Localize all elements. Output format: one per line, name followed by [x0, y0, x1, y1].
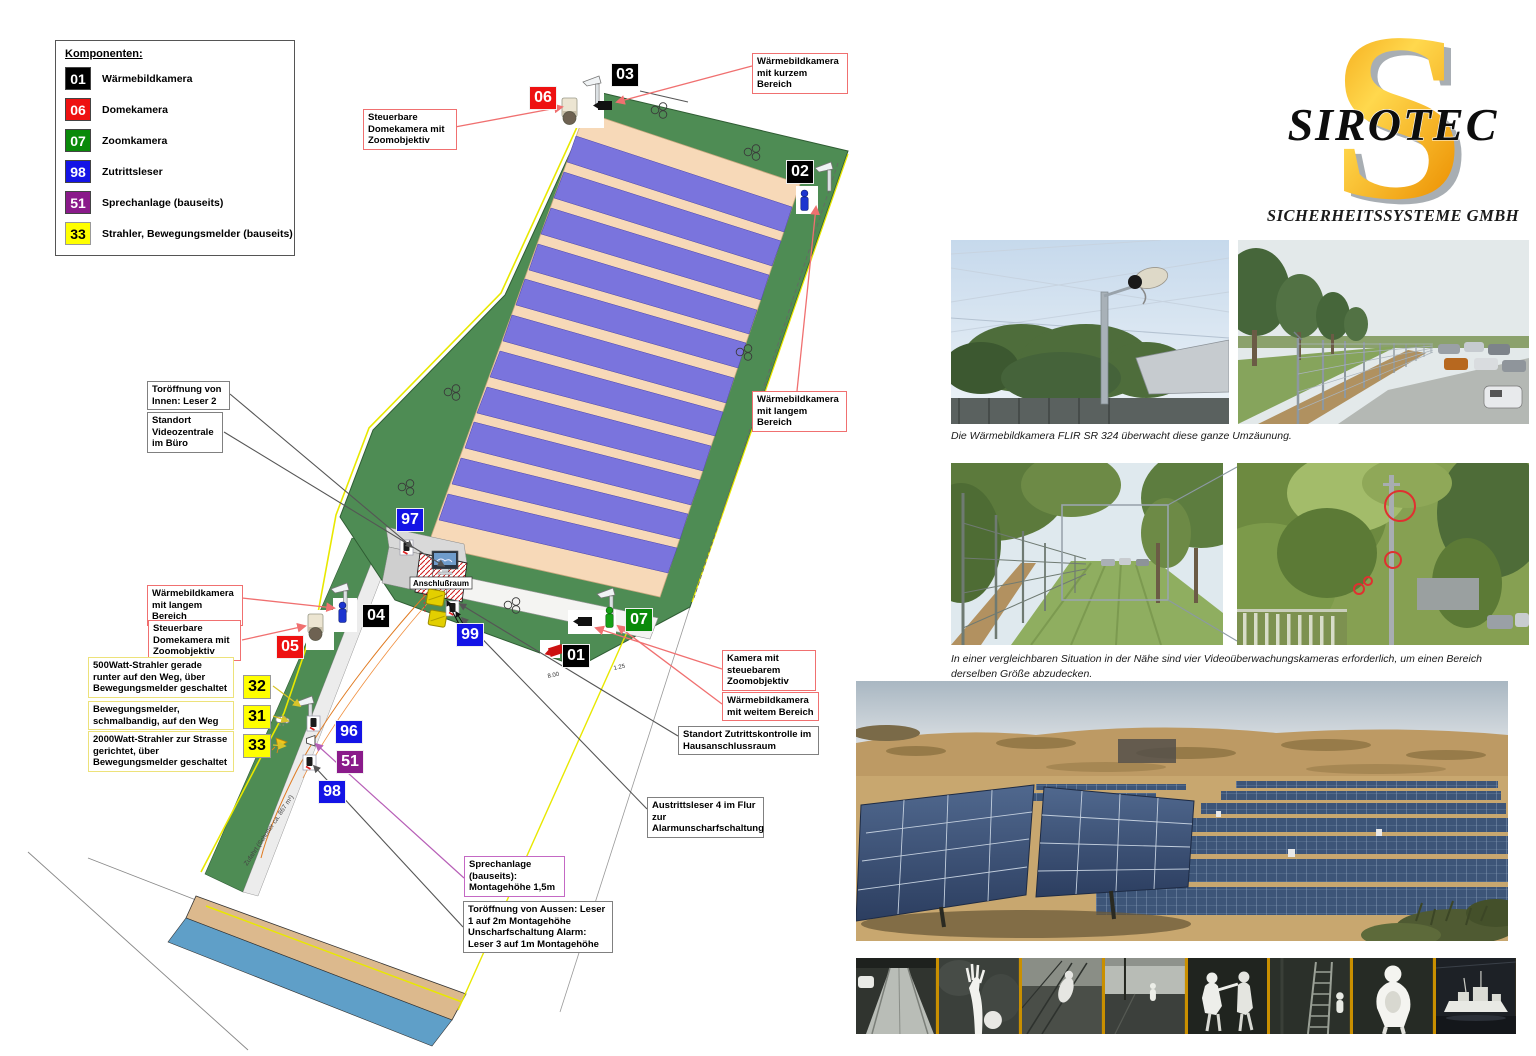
- photo-flir-camera-pole: [951, 240, 1229, 424]
- badge-06: 06: [529, 86, 557, 110]
- legend-code-07: 07: [65, 129, 91, 152]
- access-reader-icon: [303, 755, 316, 770]
- callout-kamera-zoom: Kamera mit steuebarem Zoomobjektiv: [722, 650, 816, 691]
- badge-33: 33: [243, 734, 271, 758]
- legend-code-01: 01: [65, 67, 91, 90]
- callout-waermebild-kurz: Wärmebildkamera mit kurzem Bereich: [752, 53, 848, 94]
- legend-code-51: 51: [65, 191, 91, 214]
- thermal-frame-ladder: [1270, 958, 1350, 1034]
- badge-03: 03: [611, 63, 639, 87]
- legend-item-waermebildkamera: 01 Wärmebildkamera: [65, 67, 285, 90]
- callout-austrittsleser: Austrittsleser 4 im Flur zur Alarmunscha…: [647, 797, 764, 838]
- zoom-camera-post-icon: [606, 607, 613, 628]
- badge-32: 32: [243, 675, 271, 699]
- junction-box-icon: [428, 610, 447, 628]
- sirotec-logo: S S SIROTEC SICHERHEITSSYSTEME GMBH: [1260, 25, 1520, 235]
- legend-item-strahler: 33 Strahler, Bewegungsmelder (bauseits): [65, 222, 285, 245]
- thermal-camera-post-icon: [339, 602, 346, 623]
- cars: [1487, 613, 1529, 629]
- dimension-label-a: 8.00: [547, 672, 560, 680]
- badge-31: 31: [243, 705, 271, 729]
- legend-code-33: 33: [65, 222, 91, 245]
- thermal-frame-crouching-person: [1353, 958, 1433, 1034]
- legend-label: Wärmebildkamera: [102, 73, 192, 85]
- photo-camera-pole-annotated: [1197, 463, 1529, 645]
- badge-05: 05: [276, 635, 304, 659]
- badge-04: 04: [362, 604, 390, 628]
- callout-waermebild-weit: Wärmebildkamera mit weitem Bereich: [722, 692, 819, 721]
- legend: Komponenten: 01 Wärmebildkamera 06 Domek…: [55, 40, 295, 256]
- junction-box-icon: [426, 589, 445, 607]
- legend-title: Komponenten:: [65, 48, 285, 60]
- photo-fence-line: [1222, 240, 1529, 424]
- page: Anschlußraum: [0, 0, 1536, 1056]
- badge-01: 01: [562, 644, 590, 668]
- legend-code-98: 98: [65, 160, 91, 183]
- fence: [1237, 609, 1347, 645]
- callout-domekamera-left: Steuerbare Domekamera mit Zoomobjektiv: [148, 620, 241, 661]
- badge-07: 07: [625, 608, 653, 632]
- legend-label: Zoomkamera: [102, 135, 167, 147]
- callout-domekamera-top: Steuerbare Domekamera mit Zoomobjektiv: [363, 109, 457, 150]
- photo-row-2: [951, 463, 1529, 645]
- background-building: [1417, 578, 1479, 610]
- thermal-frame-street: [1105, 958, 1185, 1034]
- photo-solar-farm: [856, 681, 1508, 941]
- badge-96: 96: [335, 720, 363, 744]
- legend-code-06: 06: [65, 98, 91, 121]
- badge-02: 02: [786, 160, 814, 184]
- quarry: [1118, 739, 1176, 763]
- thermal-strip: [856, 958, 1516, 1034]
- dome-camera-icon: [308, 614, 323, 641]
- access-reader-icon: [307, 716, 320, 731]
- photo-fence-alley: [951, 463, 1261, 645]
- callout-waermebild-lang-r: Wärmebildkamera mit langem Bereich: [752, 391, 847, 432]
- caption-vergleich: In einer vergleichbaren Situation in der…: [951, 652, 1529, 681]
- badge-98: 98: [318, 780, 346, 804]
- logo-subtitle: SICHERHEITSSYSTEME GMBH: [1267, 206, 1520, 225]
- legend-item-sprechanlage: 51 Sprechanlage (bauseits): [65, 191, 285, 214]
- badge-97: 97: [396, 508, 424, 532]
- far-cars: [1101, 558, 1149, 566]
- callout-toroeffnung-innen: Toröffnung von Innen: Leser 2: [147, 381, 230, 410]
- callout-videozentrale: Standort Videozentrale im Büro: [147, 412, 223, 453]
- dimension-label-b: 1.25: [613, 664, 626, 672]
- anschlussraum-label: Anschlußraum: [413, 579, 469, 588]
- foreground-array: [856, 785, 1194, 938]
- legend-label: Strahler, Bewegungsmelder (bauseits): [102, 228, 293, 240]
- callout-bewegungsmelder: Bewegungsmelder, schmalbandig, auf den W…: [88, 701, 234, 730]
- thermal-frame-road: [856, 958, 936, 1034]
- dome-camera-icon: [562, 98, 577, 125]
- legend-label: Sprechanlage (bauseits): [102, 197, 223, 209]
- callout-2000watt: 2000Watt-Strahler zur Strasse gerichtet,…: [88, 731, 234, 772]
- legend-label: Domekamera: [102, 104, 168, 116]
- logo-wordmark: SIROTEC: [1288, 99, 1499, 150]
- camera-pole: [1389, 475, 1394, 645]
- photo-row-1: [951, 240, 1529, 424]
- legend-item-zoomkamera: 07 Zoomkamera: [65, 129, 285, 152]
- callout-sprechanlage: Sprechanlage (bauseits): Montagehöhe 1,5…: [464, 856, 565, 897]
- legend-item-zutrittsleser: 98 Zutrittsleser: [65, 160, 285, 183]
- thermal-frame-hand: [939, 958, 1019, 1034]
- caption-flir: Die Wärmebildkamera FLIR SR 324 überwach…: [951, 429, 1529, 444]
- legend-label: Zutrittsleser: [102, 166, 163, 178]
- callout-500watt: 500Watt-Strahler gerade runter auf den W…: [88, 657, 234, 698]
- callout-zutrittskontrolle: Standort Zutrittskontrolle im Hausanschl…: [678, 726, 819, 755]
- thermal-frame-fence-climb: [1022, 958, 1102, 1034]
- thermal-frame-two-people: [1188, 958, 1268, 1034]
- callout-toroeffnung-aussen: Toröffnung von Aussen: Leser 1 auf 2m Mo…: [463, 901, 613, 953]
- badge-51: 51: [336, 750, 364, 774]
- thermal-camera-post-icon: [801, 190, 808, 211]
- thermal-frame-ship: [1436, 958, 1516, 1034]
- badge-99: 99: [456, 623, 484, 647]
- legend-item-domekamera: 06 Domekamera: [65, 98, 285, 121]
